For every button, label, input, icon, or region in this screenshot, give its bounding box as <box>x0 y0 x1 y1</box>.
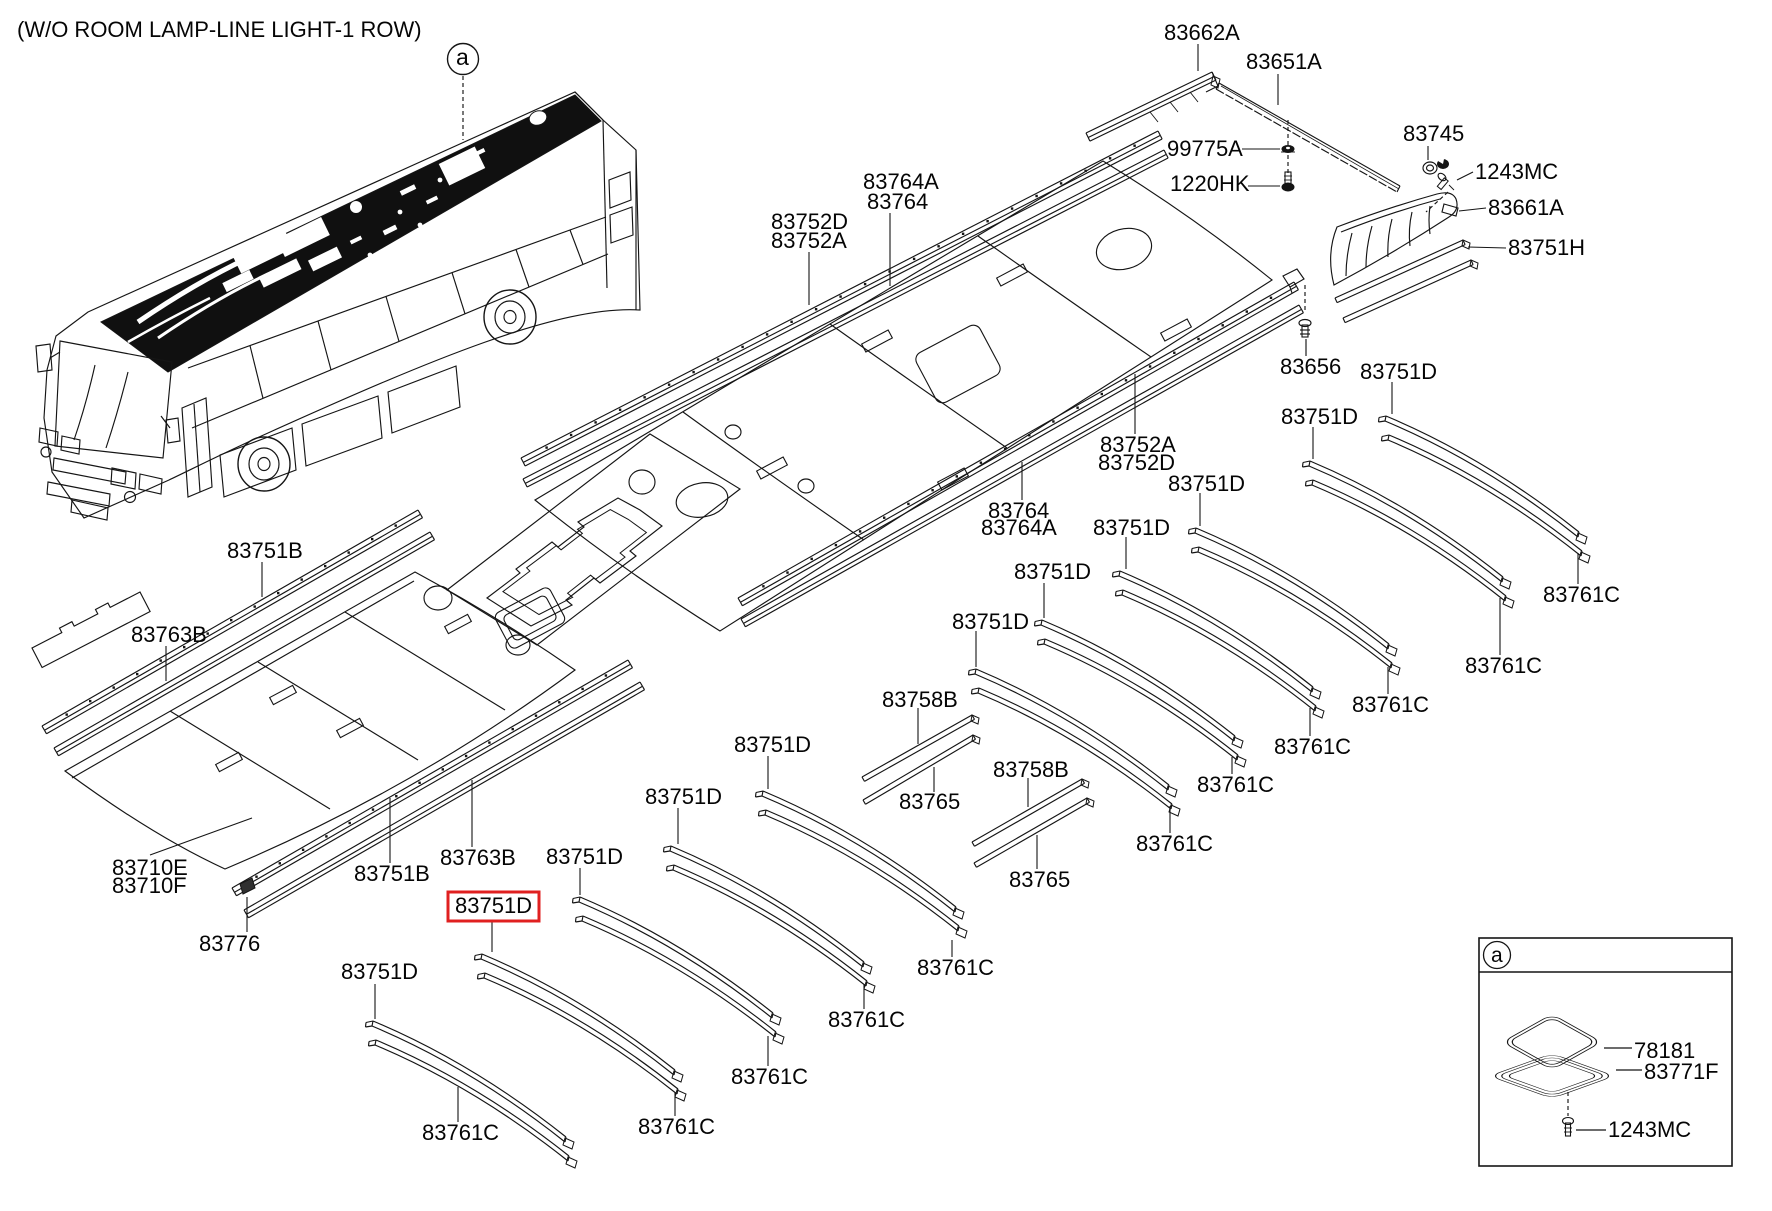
svg-text:a: a <box>456 44 469 70</box>
svg-text:83662A: 83662A <box>1164 20 1240 45</box>
svg-text:83751D: 83751D <box>1360 359 1437 384</box>
svg-text:83751D: 83751D <box>734 732 811 757</box>
svg-text:1243MC: 1243MC <box>1608 1117 1691 1142</box>
svg-text:83661A: 83661A <box>1488 195 1564 220</box>
svg-text:83764A: 83764A <box>981 515 1057 540</box>
svg-text:83651A: 83651A <box>1246 49 1322 74</box>
svg-text:83761C: 83761C <box>1352 692 1429 717</box>
svg-text:83776: 83776 <box>199 931 260 956</box>
svg-text:83751D: 83751D <box>455 893 532 918</box>
svg-text:83751D: 83751D <box>341 959 418 984</box>
svg-text:83751D: 83751D <box>952 609 1029 634</box>
svg-text:83710F: 83710F <box>112 873 187 898</box>
svg-text:83763B: 83763B <box>440 845 516 870</box>
svg-text:83761C: 83761C <box>1543 582 1620 607</box>
svg-text:83751D: 83751D <box>546 844 623 869</box>
svg-text:83761C: 83761C <box>638 1114 715 1139</box>
svg-text:83758B: 83758B <box>993 757 1069 782</box>
svg-text:83751B: 83751B <box>354 861 430 886</box>
svg-text:83763B: 83763B <box>131 622 207 647</box>
svg-text:83751D: 83751D <box>1093 515 1170 540</box>
svg-text:83751D: 83751D <box>1281 404 1358 429</box>
svg-text:83761C: 83761C <box>1136 831 1213 856</box>
svg-text:83771F: 83771F <box>1644 1059 1719 1084</box>
svg-text:83761C: 83761C <box>828 1007 905 1032</box>
svg-text:83758B: 83758B <box>882 687 958 712</box>
svg-text:83761C: 83761C <box>1274 734 1351 759</box>
svg-text:99775A: 99775A <box>1167 136 1243 161</box>
svg-text:83751D: 83751D <box>1014 559 1091 584</box>
svg-text:83752A: 83752A <box>771 228 847 253</box>
svg-text:83752D: 83752D <box>1098 450 1175 475</box>
svg-text:83751B: 83751B <box>227 538 303 563</box>
svg-text:83765: 83765 <box>899 789 960 814</box>
svg-text:83761C: 83761C <box>917 955 994 980</box>
svg-text:(W/O ROOM LAMP-LINE LIGHT-1 RO: (W/O ROOM LAMP-LINE LIGHT-1 ROW) <box>17 17 422 42</box>
svg-text:83761C: 83761C <box>731 1064 808 1089</box>
svg-text:83764: 83764 <box>867 189 928 214</box>
svg-text:83751D: 83751D <box>1168 471 1245 496</box>
svg-text:1243MC: 1243MC <box>1475 159 1558 184</box>
svg-text:1220HK: 1220HK <box>1170 171 1250 196</box>
svg-text:83761C: 83761C <box>1197 772 1274 797</box>
svg-text:83765: 83765 <box>1009 867 1070 892</box>
svg-text:83656: 83656 <box>1280 354 1341 379</box>
svg-text:83761C: 83761C <box>1465 653 1542 678</box>
svg-text:83761C: 83761C <box>422 1120 499 1145</box>
svg-text:83751D: 83751D <box>645 784 722 809</box>
svg-text:83751H: 83751H <box>1508 235 1585 260</box>
svg-text:a: a <box>1491 944 1503 967</box>
svg-text:83745: 83745 <box>1403 121 1464 146</box>
